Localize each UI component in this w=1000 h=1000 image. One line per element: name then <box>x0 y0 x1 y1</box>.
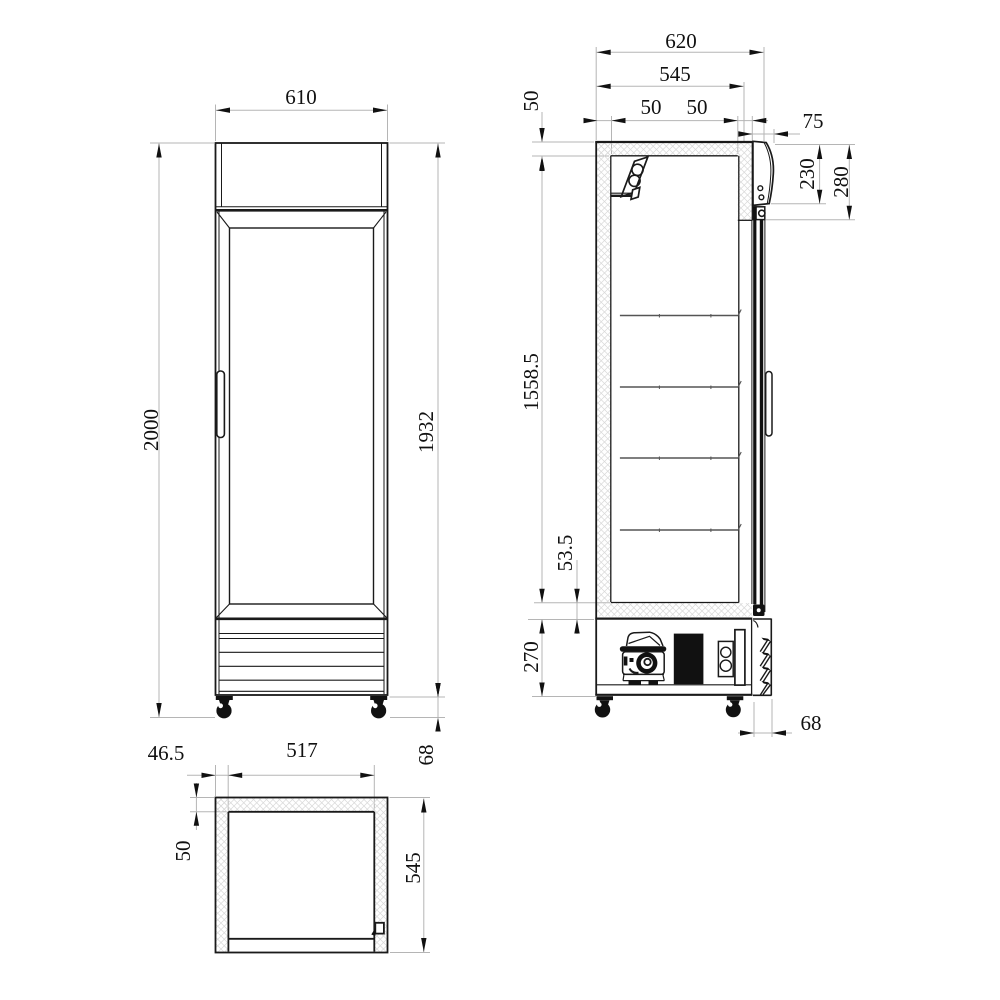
svg-text:75: 75 <box>803 109 824 133</box>
svg-text:545: 545 <box>659 62 691 86</box>
svg-text:1932: 1932 <box>414 411 438 453</box>
svg-text:68: 68 <box>801 711 822 735</box>
svg-text:1558.5: 1558.5 <box>519 353 543 411</box>
svg-text:517: 517 <box>286 738 318 762</box>
svg-text:50: 50 <box>641 95 662 119</box>
svg-text:53.5: 53.5 <box>553 535 577 572</box>
svg-text:270: 270 <box>519 641 543 673</box>
svg-text:2000: 2000 <box>139 409 163 451</box>
svg-text:620: 620 <box>665 29 697 53</box>
svg-text:50: 50 <box>687 95 708 119</box>
svg-text:280: 280 <box>829 166 853 198</box>
svg-text:230: 230 <box>795 158 819 190</box>
svg-text:545: 545 <box>401 852 425 884</box>
svg-text:68: 68 <box>414 745 438 766</box>
svg-text:610: 610 <box>285 85 317 109</box>
svg-text:50: 50 <box>519 91 543 112</box>
svg-text:50: 50 <box>171 841 195 862</box>
svg-text:46.5: 46.5 <box>148 741 185 765</box>
